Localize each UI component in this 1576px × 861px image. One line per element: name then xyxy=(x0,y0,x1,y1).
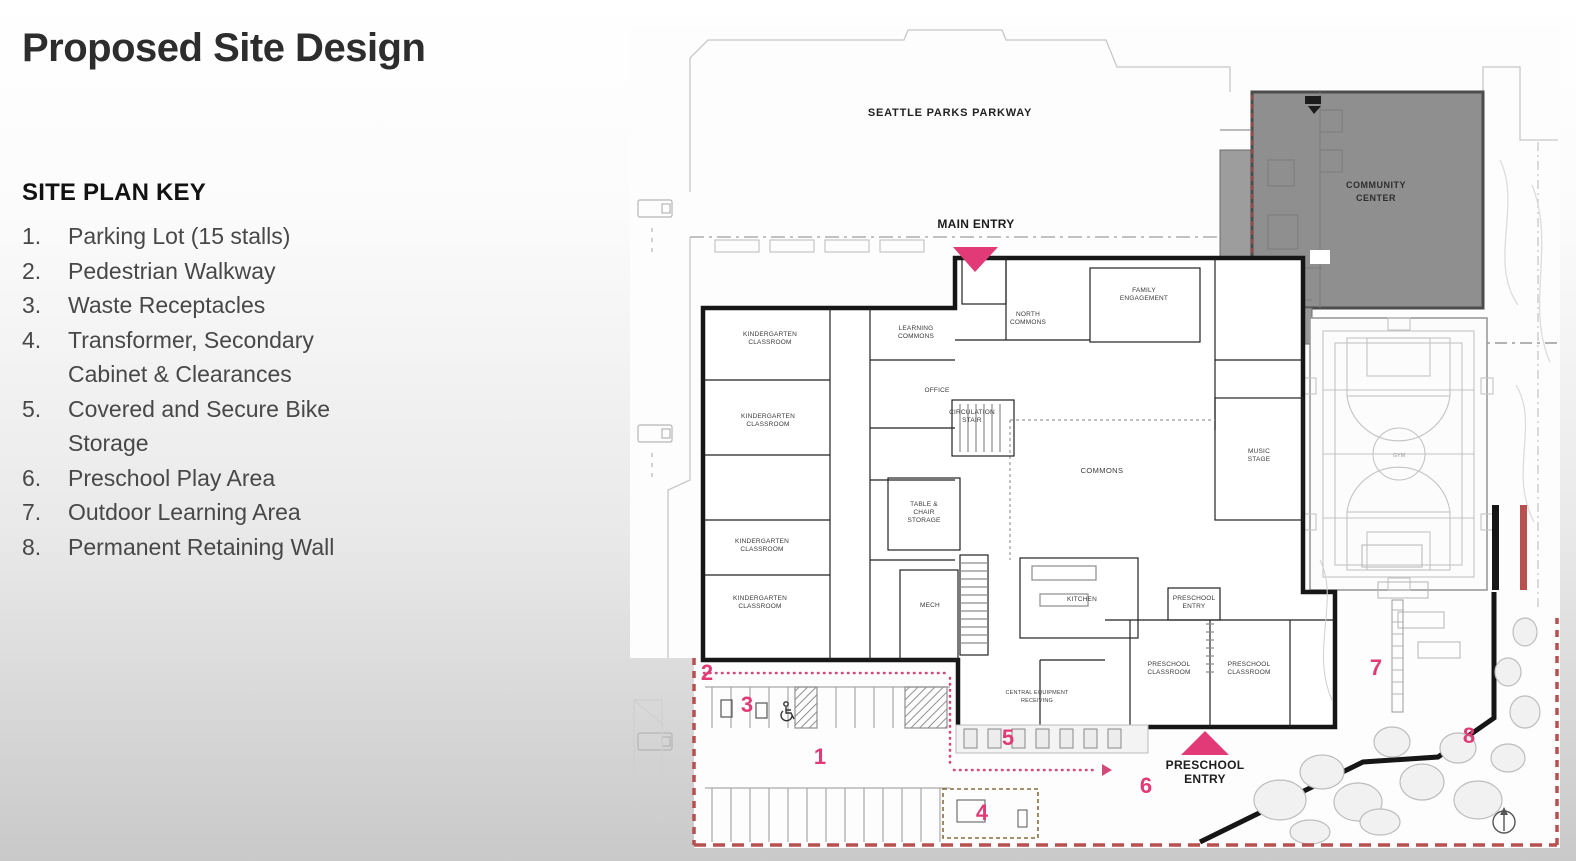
svg-text:CLASSROOM: CLASSROOM xyxy=(746,421,789,428)
svg-text:PRESCHOOL: PRESCHOOL xyxy=(1173,595,1216,602)
svg-text:KINDERGARTEN: KINDERGARTEN xyxy=(733,595,787,602)
svg-text:KINDERGARTEN: KINDERGARTEN xyxy=(743,331,797,338)
site-plan-key: SITE PLAN KEY 1.Parking Lot (15 stalls) … xyxy=(22,179,452,564)
svg-text:CLASSROOM: CLASSROOM xyxy=(738,603,781,610)
marker-1: 1 xyxy=(814,744,826,769)
svg-text:CLASSROOM: CLASSROOM xyxy=(1147,669,1190,676)
svg-text:CIRCULATION: CIRCULATION xyxy=(949,409,995,416)
school-building: KINDERGARTEN CLASSROOM KINDERGARTEN CLAS… xyxy=(703,258,1335,727)
svg-text:FAMILY: FAMILY xyxy=(1132,287,1156,294)
key-item-6: 6.Preschool Play Area xyxy=(22,461,452,496)
svg-text:LEARNING: LEARNING xyxy=(899,325,934,332)
preschool-entry-label-2: ENTRY xyxy=(1184,772,1226,786)
svg-text:STAIR: STAIR xyxy=(962,417,982,424)
site-plan: SEATTLE PARKS PARKWAY xyxy=(620,0,1576,861)
svg-text:MUSIC: MUSIC xyxy=(1248,448,1270,455)
svg-text:CLASSROOM: CLASSROOM xyxy=(1227,669,1270,676)
marker-3: 3 xyxy=(741,692,753,717)
retaining-wall-segment xyxy=(1492,505,1499,590)
key-item-2: 2.Pedestrian Walkway xyxy=(22,254,452,289)
marker-7: 7 xyxy=(1370,655,1382,680)
svg-text:MECH: MECH xyxy=(920,602,940,609)
svg-text:STORAGE: STORAGE xyxy=(907,517,941,524)
marker-2: 2 xyxy=(701,660,713,685)
marker-4: 4 xyxy=(976,800,989,825)
svg-text:ENGAGEMENT: ENGAGEMENT xyxy=(1120,295,1168,302)
svg-text:ENTRY: ENTRY xyxy=(1183,603,1206,610)
svg-text:OFFICE: OFFICE xyxy=(924,387,949,394)
gym-label: GYM xyxy=(1393,453,1406,459)
marker-8: 8 xyxy=(1463,723,1475,748)
bike-storage xyxy=(956,725,1148,753)
page-title: Proposed Site Design xyxy=(22,26,452,71)
key-item-1: 1.Parking Lot (15 stalls) xyxy=(22,219,452,254)
key-panel: Proposed Site Design SITE PLAN KEY 1.Par… xyxy=(22,26,452,564)
preschool-entry-label-1: PRESCHOOL xyxy=(1166,758,1245,772)
key-item-5: 5.Covered and Secure Bike Storage xyxy=(22,392,452,461)
community-center-label-2: CENTER xyxy=(1356,193,1396,203)
community-center-label-1: COMMUNITY xyxy=(1346,180,1406,190)
svg-text:NORTH: NORTH xyxy=(1016,311,1040,318)
svg-text:KITCHEN: KITCHEN xyxy=(1067,596,1097,603)
svg-text:CLASSROOM: CLASSROOM xyxy=(748,339,791,346)
marker-5: 5 xyxy=(1002,725,1014,750)
svg-text:TABLE &: TABLE & xyxy=(910,501,938,508)
svg-text:STAGE: STAGE xyxy=(1248,456,1271,463)
svg-text:PRESCHOOL: PRESCHOOL xyxy=(1228,661,1271,668)
svg-text:CHAIR: CHAIR xyxy=(913,509,934,516)
svg-text:COMMONS: COMMONS xyxy=(1081,466,1124,475)
svg-text:CLASSROOM: CLASSROOM xyxy=(740,546,783,553)
site-plan-key-heading: SITE PLAN KEY xyxy=(22,179,452,207)
key-item-7: 7.Outdoor Learning Area xyxy=(22,495,452,530)
key-item-4: 4.Transformer, Secondary Cabinet & Clear… xyxy=(22,323,452,392)
key-item-3: 3.Waste Receptacles xyxy=(22,288,452,323)
main-entry-label: MAIN ENTRY xyxy=(937,217,1014,231)
marker-6: 6 xyxy=(1140,773,1152,798)
svg-text:PRESCHOOL: PRESCHOOL xyxy=(1148,661,1191,668)
svg-text:CENTRAL EQUIPMENT: CENTRAL EQUIPMENT xyxy=(1005,690,1069,696)
boundary-segment xyxy=(1520,505,1527,590)
svg-text:COMMONS: COMMONS xyxy=(898,333,935,340)
slide: Proposed Site Design SITE PLAN KEY 1.Par… xyxy=(0,0,1576,861)
svg-text:KINDERGARTEN: KINDERGARTEN xyxy=(735,538,789,545)
street-label: SEATTLE PARKS PARKWAY xyxy=(868,107,1032,119)
svg-text:KINDERGARTEN: KINDERGARTEN xyxy=(741,413,795,420)
key-item-8: 8.Permanent Retaining Wall xyxy=(22,530,452,565)
svg-text:COMMONS: COMMONS xyxy=(1010,319,1047,326)
svg-text:RECEIVING: RECEIVING xyxy=(1021,698,1053,704)
